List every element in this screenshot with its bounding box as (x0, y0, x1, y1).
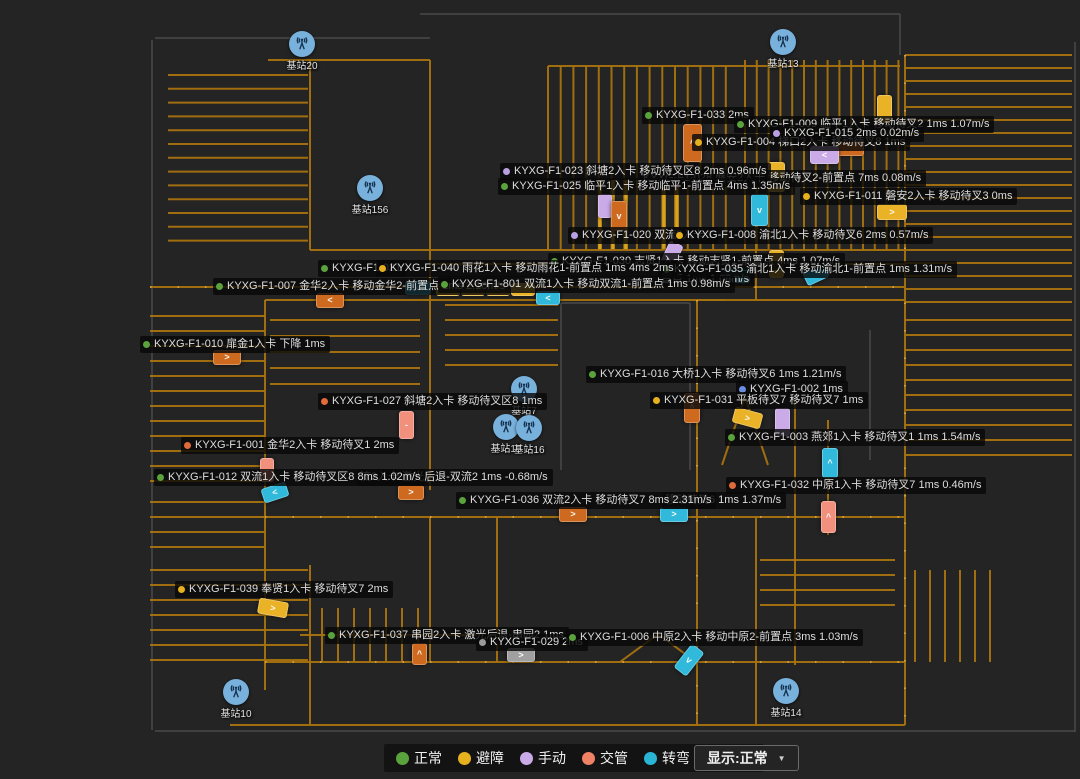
status-color-icon (458, 752, 471, 765)
status-color-icon (644, 752, 657, 765)
vehicle-marker[interactable]: - (399, 411, 414, 439)
vehicle-label-text: KYXG-F1-008 渝北1入卡 移动待叉6 2ms 0.57m/s (687, 229, 928, 242)
status-dot-icon (729, 482, 736, 489)
vehicle-marker[interactable]: ^ (412, 643, 427, 665)
vehicle-label[interactable]: KYXG-F1-031 平板待叉7 移动待叉7 1ms (650, 392, 868, 409)
vehicle-heading-icon: > (270, 603, 277, 613)
legend-item[interactable]: 避障 (458, 748, 504, 768)
vehicle-marker[interactable]: < (536, 291, 560, 305)
vehicle-label-text: KYXG-F1-023 斜塘2入卡 移动待叉区8 2ms 0.96m/s (514, 165, 766, 178)
status-dot-icon (157, 474, 164, 481)
base-station-label: 基站156 (330, 201, 410, 216)
vehicle-label-text: KYXG-F1-801 双流1入卡 移动双流1-前置点 1ms 0.98m/s (452, 278, 730, 291)
status-dot-icon (216, 283, 223, 290)
base-station-label: 基站16 (489, 441, 569, 456)
antenna-icon (289, 31, 315, 57)
vehicle-marker[interactable]: > (559, 507, 587, 522)
vehicle-label[interactable]: KYXG-F1-012 双流1入卡 移动待叉区8 8ms 1.02m/s (154, 469, 425, 486)
vehicle-label[interactable]: KYXG-F1-015 2ms 0.02m/s (770, 125, 924, 142)
legend-item[interactable]: 交管 (582, 748, 628, 768)
antenna-icon (223, 679, 249, 705)
vehicle-heading-icon: < (271, 487, 279, 497)
vehicle-label-text: KYXG-F1-001 金华2入卡 移动待叉1 2ms (195, 439, 394, 452)
status-dot-icon (676, 232, 683, 239)
vehicle-label[interactable]: KYXG-F1-025 临平1入卡 移动临平1-前置点 4ms 1.35m/s (498, 178, 795, 195)
vehicle-label-text: KYXG-F1-035 渝北1入卡 移动渝北1-前置点 1ms 1.31m/s (674, 263, 952, 276)
antenna-icon (516, 415, 542, 441)
status-dot-icon (441, 281, 448, 288)
status-dot-icon (653, 397, 660, 404)
vehicle-label[interactable]: KYXG-F1-036 双流2入卡 移动待叉7 8ms 2.31m/s (456, 492, 716, 509)
vehicle-label-text: KYXG-F1-010 扉金1入卡 下降 1ms (154, 338, 325, 351)
vehicle-label-text: KYXG-F1-011 磐安2入卡 移动待叉3 0ms (814, 190, 1012, 203)
vehicle-heading-icon: ^ (826, 513, 831, 522)
vehicle-marker[interactable]: > (398, 485, 424, 500)
vehicle-heading-icon: v (616, 212, 621, 221)
status-dot-icon (503, 168, 510, 175)
vehicle-heading-icon: ^ (827, 459, 832, 468)
antenna-icon (773, 678, 799, 704)
status-dot-icon (184, 442, 191, 449)
vehicle-label[interactable]: KYXG-F1-039 奉贤1入卡 移动待叉7 2ms (175, 581, 393, 598)
vehicle-heading-icon: > (744, 413, 751, 423)
display-filter-label: 显示:正常 (707, 748, 768, 768)
vehicle-heading-icon: > (889, 208, 894, 217)
status-dot-icon (328, 632, 335, 639)
vehicle-label[interactable]: KYXG-F1-027 斜塘2入卡 移动待叉区8 1ms (318, 393, 547, 410)
vehicle-label-text: KYXG-F1-031 平板待叉7 移动待叉7 1ms (664, 394, 863, 407)
vehicle-label[interactable]: KYXG-F1-008 渝北1入卡 移动待叉6 2ms 0.57m/s (673, 227, 933, 244)
status-dot-icon (143, 341, 150, 348)
status-dot-icon (501, 183, 508, 190)
vehicle-heading-icon: ^ (417, 650, 422, 659)
vehicle-label-text: KYXG-F1-003 燕郊1入卡 移动待叉1 1ms 1.54m/s (739, 431, 980, 444)
status-dot-icon (459, 497, 466, 504)
vehicle-marker[interactable]: > (660, 507, 688, 522)
vehicle-marker[interactable] (598, 194, 612, 218)
status-color-icon (582, 752, 595, 765)
status-dot-icon (645, 112, 652, 119)
status-dot-icon (803, 193, 810, 200)
vehicle-marker[interactable]: ^ (821, 501, 836, 533)
vehicle-marker[interactable]: < (316, 293, 344, 308)
vehicle-heading-icon: < (327, 296, 332, 305)
vehicle-label[interactable]: KYXG-F1-006 中原2入卡 移动中原2-前置点 3ms 1.03m/s (566, 629, 863, 646)
vehicle-label-text: KYXG-F1-040 雨花1入卡 移动雨花1-前置点 1ms 4ms 2ms (390, 262, 674, 275)
display-filter-dropdown[interactable]: 显示:正常 ▼ (694, 745, 799, 771)
vehicle-marker[interactable]: v (751, 194, 768, 226)
status-color-icon (396, 752, 409, 765)
vehicle-label-text: KYXG-F1-039 奉贤1入卡 移动待叉7 2ms (189, 583, 388, 596)
vehicle-label-text: KYXG-F1-015 2ms 0.02m/s (784, 127, 919, 140)
vehicle-heading-icon: < (545, 294, 550, 303)
vehicle-label-text: KYXG-F1-025 临平1入卡 移动临平1-前置点 4ms 1.35m/s (512, 180, 790, 193)
status-dot-icon (589, 371, 596, 378)
vehicle-heading-icon: < (822, 151, 827, 160)
vehicle-heading-icon: v (684, 655, 693, 665)
status-dot-icon (479, 639, 486, 646)
legend-item[interactable]: 手动 (520, 748, 566, 768)
vehicle-label[interactable]: KYXG-F1-011 磐安2入卡 移动待叉3 0ms (800, 188, 1017, 205)
base-station-label: 基站13 (743, 55, 823, 70)
status-dot-icon (321, 265, 328, 272)
vehicle-label-text: KYXG-F1-006 中原2入卡 移动中原2-前置点 3ms 1.03m/s (580, 631, 858, 644)
vehicle-marker[interactable]: > (877, 204, 907, 220)
base-station-label: 基站20 (262, 57, 342, 72)
status-dot-icon (178, 586, 185, 593)
vehicle-label-text: KYXG-F1-012 双流1入卡 移动待叉区8 8ms 1.02m/s (168, 471, 420, 484)
antenna-icon (357, 175, 383, 201)
vehicle-label[interactable]: KYXG-F1-010 扉金1入卡 下降 1ms (140, 336, 330, 353)
base-station-label: 基站10 (196, 705, 276, 720)
status-dot-icon (695, 139, 702, 146)
vehicle-label[interactable]: KYXG-F1-003 燕郊1入卡 移动待叉1 1ms 1.54m/s (725, 429, 985, 446)
status-dot-icon (321, 398, 328, 405)
vehicle-heading-icon: - (405, 421, 408, 430)
vehicle-heading-icon: > (518, 651, 523, 660)
vehicle-label[interactable]: KYXG-F1-040 雨花1入卡 移动雨花1-前置点 1ms 4ms 2ms (376, 260, 679, 277)
status-dot-icon (379, 265, 386, 272)
base-station-label: 基站14 (746, 704, 826, 719)
status-dot-icon (773, 130, 780, 137)
legend-item[interactable]: 正常 (396, 748, 442, 768)
vehicle-label[interactable]: KYXG-F1-801 双流1入卡 移动双流1-前置点 1ms 0.98m/s (438, 276, 735, 293)
vehicle-heading-icon: > (408, 488, 413, 497)
vehicle-heading-icon: > (671, 510, 676, 519)
chevron-down-icon: ▼ (778, 754, 786, 763)
antenna-icon (770, 29, 796, 55)
vehicle-marker[interactable]: ^ (822, 448, 838, 478)
vehicle-heading-icon: v (757, 206, 762, 215)
status-dot-icon (737, 121, 744, 128)
agv-map-canvas[interactable]: ^ < = > v v < < < < > - ^ > (0, 0, 1080, 779)
vehicle-label[interactable]: KYXG-F1-001 金华2入卡 移动待叉1 2ms (181, 437, 399, 454)
vehicle-label-text: KYXG-F1-036 双流2入卡 移动待叉7 8ms 2.31m/s (470, 494, 711, 507)
vehicle-label-text: KYXG-F1-027 斜塘2入卡 移动待叉区8 1ms (332, 395, 542, 408)
status-dot-icon (569, 634, 576, 641)
vehicle-heading-icon: > (224, 353, 229, 362)
status-dot-icon (728, 434, 735, 441)
vehicle-label-text: KYXG-F1-016 大桥1入卡 移动待叉6 1ms 1.21m/s (600, 368, 841, 381)
legend-item[interactable]: 转弯 (644, 748, 690, 768)
vehicle-label-text: KYXG-F1-032 中原1入卡 移动待叉7 1ms 0.46m/s (740, 479, 981, 492)
status-color-icon (520, 752, 533, 765)
status-dot-icon (571, 232, 578, 239)
vehicle-heading-icon: > (570, 510, 575, 519)
